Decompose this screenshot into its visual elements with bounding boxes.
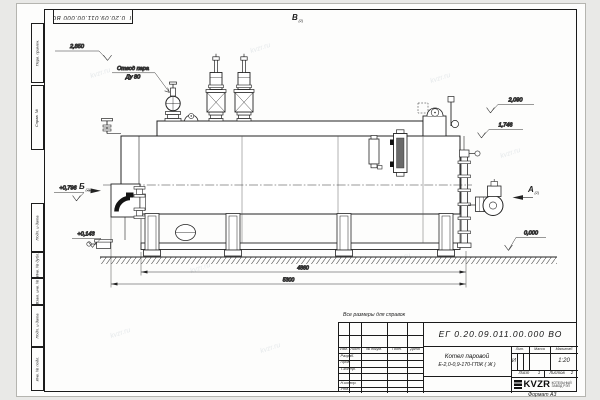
format-label: Формат А3 <box>528 393 556 398</box>
support-leg <box>336 214 353 257</box>
elevation-value: +0,796 <box>59 186 77 192</box>
dimension-value: 5300 <box>283 278 295 284</box>
tb-row-tkontr: Т.контр. <box>339 367 363 374</box>
safety-valve <box>206 54 226 121</box>
steam-outlet-callout: Отвод пара Ду 80 <box>112 66 170 93</box>
boiler-shell <box>121 136 460 214</box>
elevation-1746: 1,746 <box>478 123 523 139</box>
support-leg <box>438 214 455 257</box>
safety-valve <box>234 54 254 121</box>
elevation-value: 2,850 <box>69 44 85 50</box>
boiler-body <box>121 116 460 250</box>
tb-col-data: Дата <box>407 347 423 353</box>
tb-sheet-value: 1 <box>535 370 543 377</box>
top-platform <box>157 121 423 136</box>
elevation-value: +0,143 <box>77 232 95 238</box>
base-skid <box>141 243 460 250</box>
rear-top-box <box>423 116 446 136</box>
tb-row-nkontr: Н.контр. <box>339 380 363 387</box>
tb-row-razrab: Разраб. <box>339 353 363 360</box>
front-top-valve <box>102 119 122 134</box>
elevation-0000: 0,000 <box>505 231 546 251</box>
product-name-line2: Е-2,0-0,9-170-ГПЖ ( Ж ) <box>438 363 495 368</box>
tb-lit-value: И <box>511 353 517 371</box>
elevation-value: 1,746 <box>499 123 514 129</box>
tb-line <box>339 373 423 374</box>
view-label-v: В (2) <box>292 13 304 23</box>
support-leg <box>144 214 161 257</box>
view-arrow <box>513 195 524 200</box>
product-name-line1: Котел паровой <box>445 354 489 360</box>
platform-bell <box>183 113 200 121</box>
document-number: ЕГ 0.20.09.011.00.000 ВО <box>423 323 578 346</box>
title-block: Изм. Лист № докум. Подп. Дата Разраб. Пр… <box>338 322 577 392</box>
callout-text: Отвод пара <box>117 66 149 72</box>
tb-sheets-value: 2 <box>568 370 576 377</box>
dimension-4860: 4860 <box>141 251 466 288</box>
callout-text: Ду 80 <box>125 75 141 81</box>
hidden-contour <box>418 103 428 113</box>
dimension-5300: 5300 <box>111 217 466 288</box>
view-label-b: Б (2) <box>79 182 101 193</box>
company-line2: ЗАВОД РЭП <box>552 385 572 388</box>
dimension-value: 4860 <box>297 266 309 272</box>
lever-knob <box>448 97 454 103</box>
tb-line <box>387 323 388 393</box>
product-name: Котел паровой Е-2,0-0,9-170-ГПЖ ( Ж ) <box>423 346 511 376</box>
elevation-2090: 2,090 <box>487 98 534 114</box>
logo-mark <box>514 380 522 390</box>
view-sheet-ref: (2) <box>299 19 304 23</box>
tb-line <box>523 353 524 371</box>
company-logo: KVZR КОТЕЛЬНЫЙ ЗАВОД РЭП <box>511 377 578 393</box>
tb-line <box>517 353 518 371</box>
view-label-a: А (2) <box>513 185 540 200</box>
elevation-2850: 2,850 <box>55 44 112 61</box>
view-letter: В <box>292 13 298 22</box>
view-sheet-ref: (2) <box>535 191 540 195</box>
tb-line <box>423 376 511 377</box>
support-leg <box>225 214 242 257</box>
elevation-value: 2,090 <box>508 98 524 104</box>
view-arrow <box>91 188 102 193</box>
reference-note: Все размеры для справок <box>343 313 405 318</box>
elevation-value: 0,000 <box>524 231 539 237</box>
logo-text: KVZR <box>524 380 551 390</box>
tb-mass-label: Масса <box>529 347 550 353</box>
tb-sheet-label: Лист <box>511 370 537 377</box>
tb-line <box>339 335 423 336</box>
ground-line <box>100 257 557 264</box>
rear-pipe-column <box>458 136 481 248</box>
burner-assembly <box>87 184 146 249</box>
blower-fan <box>468 179 503 216</box>
tb-row-utv: Утв. <box>339 387 363 393</box>
view-letter: А <box>527 185 534 194</box>
tb-col-doc: № докум. <box>361 347 387 353</box>
tb-row-prov: Пров. <box>339 360 363 367</box>
drawing-sheet-photo: kvzr.ru kvzr.ru kvzr.ru kvzr.ru kvzr.ru … <box>0 0 600 400</box>
view-letter: Б <box>79 182 85 191</box>
tb-col-podp: Подп. <box>387 347 407 353</box>
tb-sheets-label: Листов <box>544 370 570 377</box>
view-sheet-ref: (2) <box>86 188 91 192</box>
manhole <box>176 225 196 241</box>
tb-line <box>407 323 408 393</box>
tb-scale-value: 1:20 <box>550 353 578 371</box>
